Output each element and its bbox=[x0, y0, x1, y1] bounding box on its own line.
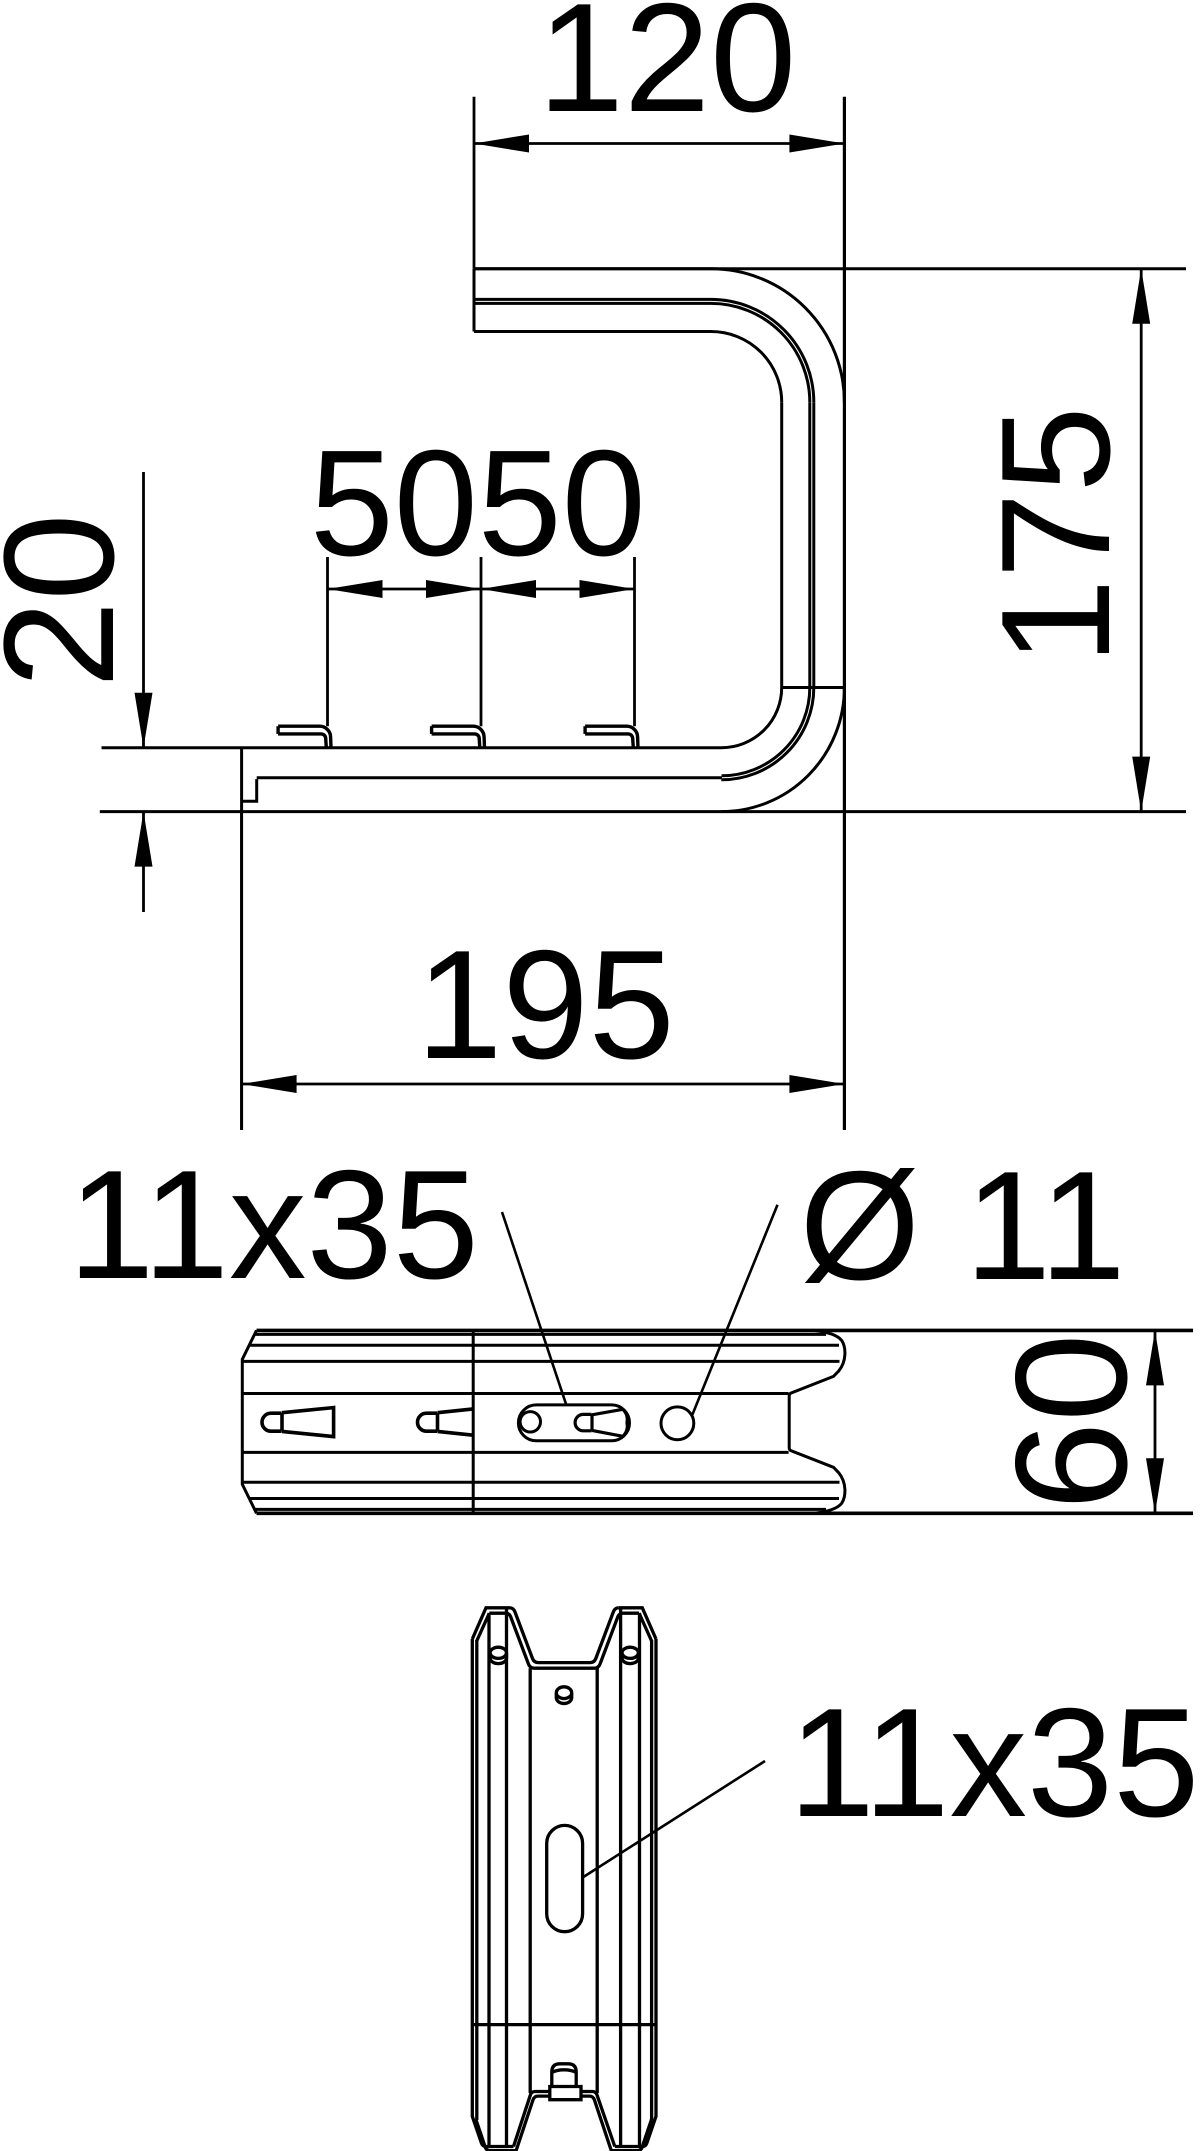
svg-text:11x35: 11x35 bbox=[789, 1676, 1200, 1849]
svg-text:5050: 5050 bbox=[310, 418, 646, 587]
svg-text:60: 60 bbox=[982, 1333, 1160, 1510]
svg-text:11x35: 11x35 bbox=[68, 1138, 479, 1311]
svg-text:Ø: Ø bbox=[800, 1139, 921, 1312]
svg-text:175: 175 bbox=[969, 406, 1142, 665]
svg-text:11: 11 bbox=[965, 1139, 1126, 1312]
svg-text:195: 195 bbox=[416, 918, 675, 1091]
svg-text:20: 20 bbox=[0, 513, 147, 688]
svg-text:120: 120 bbox=[538, 0, 797, 144]
